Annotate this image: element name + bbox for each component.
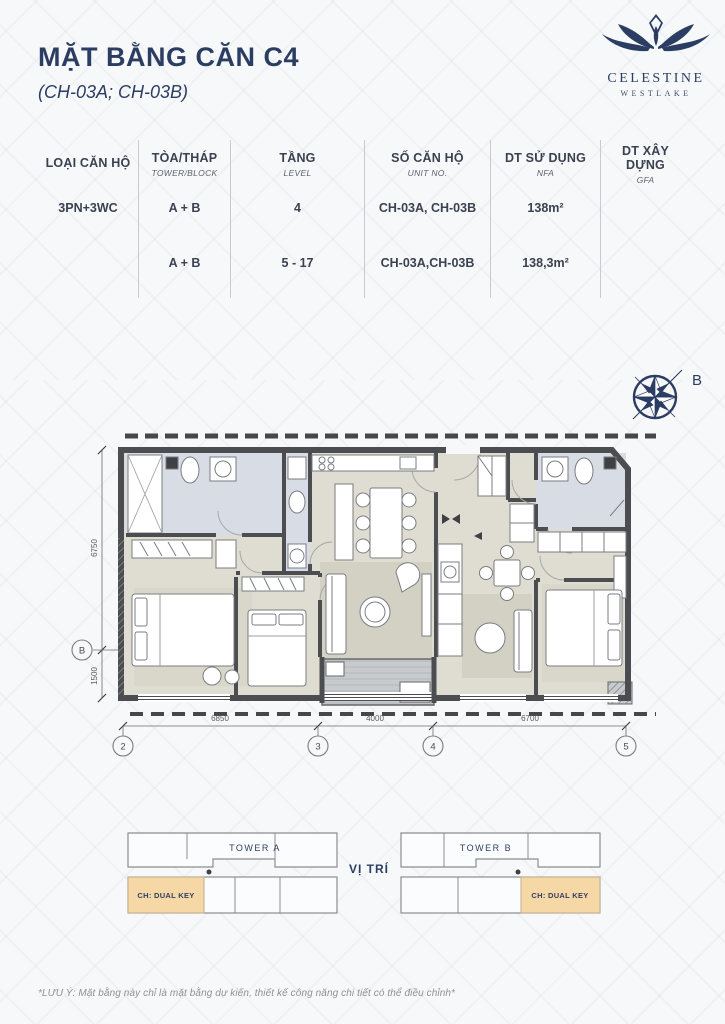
table-cell: CH-03A,CH-03B bbox=[364, 228, 490, 298]
dimension-left: 6750 1500 B bbox=[72, 446, 121, 702]
table-cell: A + B bbox=[138, 228, 230, 298]
table-cell: A + B bbox=[138, 188, 230, 228]
toilet-b bbox=[575, 458, 593, 484]
compass-rose-icon: B bbox=[626, 364, 718, 430]
table-cell: 138m² bbox=[490, 188, 600, 228]
dimension-bottom: 6850 4000 6700 2 3 4 5 bbox=[113, 714, 636, 756]
sofa-a bbox=[326, 574, 346, 654]
grid-bubble-b: B bbox=[79, 645, 85, 656]
col-header-unit-type: LOẠI CĂN HỘ bbox=[38, 140, 138, 188]
page-title: MẶT BẰNG CĂN C4 bbox=[38, 42, 299, 73]
dining-table-a bbox=[370, 488, 402, 558]
tv-console-a bbox=[422, 574, 431, 636]
core-dot bbox=[207, 870, 212, 875]
sink-b2 bbox=[547, 461, 563, 477]
tower-b-diagram: TOWER B CH: DUAL KEY bbox=[398, 830, 603, 918]
table-cell: 4 bbox=[230, 188, 364, 228]
toilet-a2 bbox=[289, 491, 305, 513]
location-label: VỊ TRÍ bbox=[340, 862, 398, 876]
entry-door-gap bbox=[446, 445, 480, 454]
dining-table-b bbox=[494, 560, 520, 586]
pouf-1 bbox=[203, 667, 221, 685]
table-cell: 138,3m² bbox=[490, 228, 600, 298]
table-cell bbox=[600, 228, 690, 298]
col-header-nfa: DT SỬ DỤNG NFA bbox=[490, 140, 600, 188]
svg-text:TOWER B: TOWER B bbox=[460, 843, 512, 853]
svg-text:TOWER A: TOWER A bbox=[229, 843, 281, 853]
svg-text:1500: 1500 bbox=[90, 667, 99, 685]
table-cell bbox=[600, 188, 690, 228]
svg-text:CH: DUAL KEY: CH: DUAL KEY bbox=[531, 891, 588, 900]
col-header-level: TẦNG LEVEL bbox=[230, 140, 364, 188]
page-subtitle: (CH-03A; CH-03B) bbox=[38, 82, 188, 103]
grid-bubble-4: 4 bbox=[430, 741, 435, 752]
table-cell: 5 - 17 bbox=[230, 228, 364, 298]
col-header-unit-no: SỐ CĂN HỘ UNIT NO. bbox=[364, 140, 490, 188]
svg-text:4000: 4000 bbox=[366, 714, 384, 723]
unit-spec-table: LOẠI CĂN HỘ TÒA/THÁP TOWER/BLOCK TẦNG LE… bbox=[38, 140, 690, 298]
svg-text:6750: 6750 bbox=[90, 539, 99, 557]
pouf-2 bbox=[225, 670, 239, 684]
col-header-tower: TÒA/THÁP TOWER/BLOCK bbox=[138, 140, 230, 188]
floor-plan: 6850 4000 6700 2 3 4 5 bbox=[70, 424, 670, 769]
grid-bubble-2: 2 bbox=[120, 741, 125, 752]
sofa-b bbox=[514, 610, 532, 672]
grid-bubble-5: 5 bbox=[623, 741, 628, 752]
compass-north-label: B bbox=[692, 372, 702, 389]
washer-a bbox=[166, 457, 178, 469]
svg-text:CH: DUAL KEY: CH: DUAL KEY bbox=[137, 891, 194, 900]
sink-a1 bbox=[215, 461, 231, 477]
grid-bubble-3: 3 bbox=[315, 741, 320, 752]
brand-name: CELESTINE bbox=[594, 71, 718, 87]
table-cell bbox=[38, 228, 138, 298]
lotus-logo-icon bbox=[594, 12, 718, 64]
table-cell: 3PN+3WC bbox=[38, 188, 138, 228]
disclaimer-note: *LƯU Ý: Mặt bằng này chỉ là mặt bằng dự … bbox=[38, 988, 455, 999]
svg-text:6700: 6700 bbox=[521, 714, 539, 723]
kitchen-counter-b bbox=[438, 544, 462, 656]
toilet-a1 bbox=[181, 457, 199, 483]
coffee-table-b bbox=[475, 623, 505, 653]
core-dot bbox=[516, 870, 521, 875]
sink-b bbox=[444, 566, 456, 578]
brand-logo: CELESTINE WESTLAKE bbox=[594, 12, 718, 98]
shower-head-b bbox=[604, 457, 616, 469]
tower-a-diagram: TOWER A CH: DUAL KEY bbox=[125, 830, 340, 918]
wardrobe-2 bbox=[242, 577, 304, 591]
kitchen-island-a bbox=[335, 484, 353, 560]
svg-text:6850: 6850 bbox=[211, 714, 229, 723]
table-cell: CH-03A, CH-03B bbox=[364, 188, 490, 228]
col-header-gfa: DT XÂY DỰNG GFA bbox=[600, 140, 690, 188]
brand-subname: WESTLAKE bbox=[594, 89, 718, 98]
sink-a2 bbox=[288, 457, 306, 479]
brochure-page: MẶT BẰNG CĂN C4 (CH-03A; CH-03B) CELESTI… bbox=[0, 0, 725, 1024]
